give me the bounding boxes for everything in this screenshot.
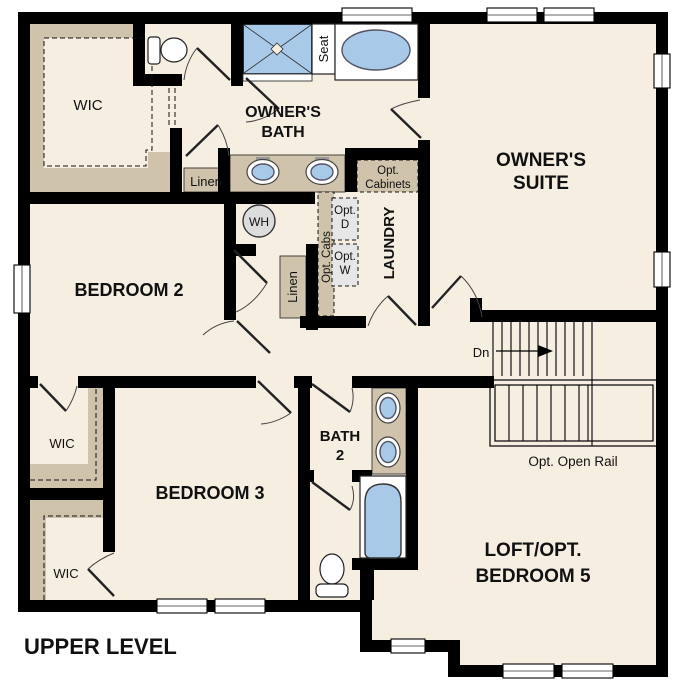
window bbox=[157, 599, 207, 613]
owners-bathtub-fixture bbox=[335, 24, 418, 80]
laundry-label: LAUNDRY bbox=[381, 207, 398, 280]
sink-fixture-bath2-1 bbox=[376, 393, 400, 423]
bath2-label-1: BATH bbox=[320, 428, 361, 445]
dn-label: Dn bbox=[473, 345, 490, 360]
opt-open-rail-label: Opt. Open Rail bbox=[528, 454, 617, 469]
window bbox=[391, 639, 425, 653]
opt-cabs-label: Opt. Cabs bbox=[321, 231, 333, 283]
window bbox=[654, 54, 670, 88]
opt-cabinets-label-2: Cabinets bbox=[365, 179, 411, 191]
sink-fixture-bath2-2 bbox=[376, 437, 400, 467]
window bbox=[14, 265, 30, 313]
linen1-label: Linen bbox=[190, 174, 222, 189]
wh-label: WH bbox=[249, 215, 269, 229]
bathtub-fixture-bath2 bbox=[360, 476, 406, 558]
linen2-label: Linen bbox=[285, 271, 300, 303]
window bbox=[562, 664, 613, 678]
owners-bath-label-1: OWNER'S bbox=[245, 104, 321, 121]
wic-top-label: WIC bbox=[73, 97, 102, 114]
owners-bath-label-2: BATH bbox=[261, 124, 304, 141]
loft-label-1: LOFT/OPT. bbox=[484, 540, 581, 561]
wic-bot-label: WIC bbox=[53, 566, 78, 581]
seat-label: Seat bbox=[316, 35, 331, 62]
bath2-label-2: 2 bbox=[336, 447, 344, 464]
bedroom2-label: BEDROOM 2 bbox=[74, 280, 183, 300]
floor-plan: OWNER'S SUITE OWNER'S BATH BEDROOM 2 BED… bbox=[0, 0, 687, 687]
plan-title: UPPER LEVEL bbox=[24, 634, 177, 659]
opt-d-label-1: Opt. bbox=[334, 205, 356, 217]
opt-w-label-1: Opt. bbox=[334, 251, 356, 263]
wic-mid-label: WIC bbox=[49, 436, 74, 451]
window bbox=[215, 599, 265, 613]
window bbox=[342, 8, 412, 22]
window bbox=[544, 8, 594, 22]
toilet-fixture-owners bbox=[148, 37, 187, 64]
owners-suite-label-2: SUITE bbox=[513, 173, 569, 194]
window bbox=[654, 252, 670, 287]
window bbox=[503, 664, 554, 678]
bedroom3-label: BEDROOM 3 bbox=[155, 483, 264, 503]
opt-w-label-2: W bbox=[340, 265, 351, 277]
loft-label-2: BEDROOM 5 bbox=[475, 566, 591, 587]
window bbox=[487, 8, 537, 22]
opt-cabinets-label-1: Opt. bbox=[377, 165, 399, 177]
opt-d-label-2: D bbox=[341, 219, 349, 231]
owners-suite-label-1: OWNER'S bbox=[496, 150, 586, 171]
shower-fixture bbox=[243, 24, 312, 81]
